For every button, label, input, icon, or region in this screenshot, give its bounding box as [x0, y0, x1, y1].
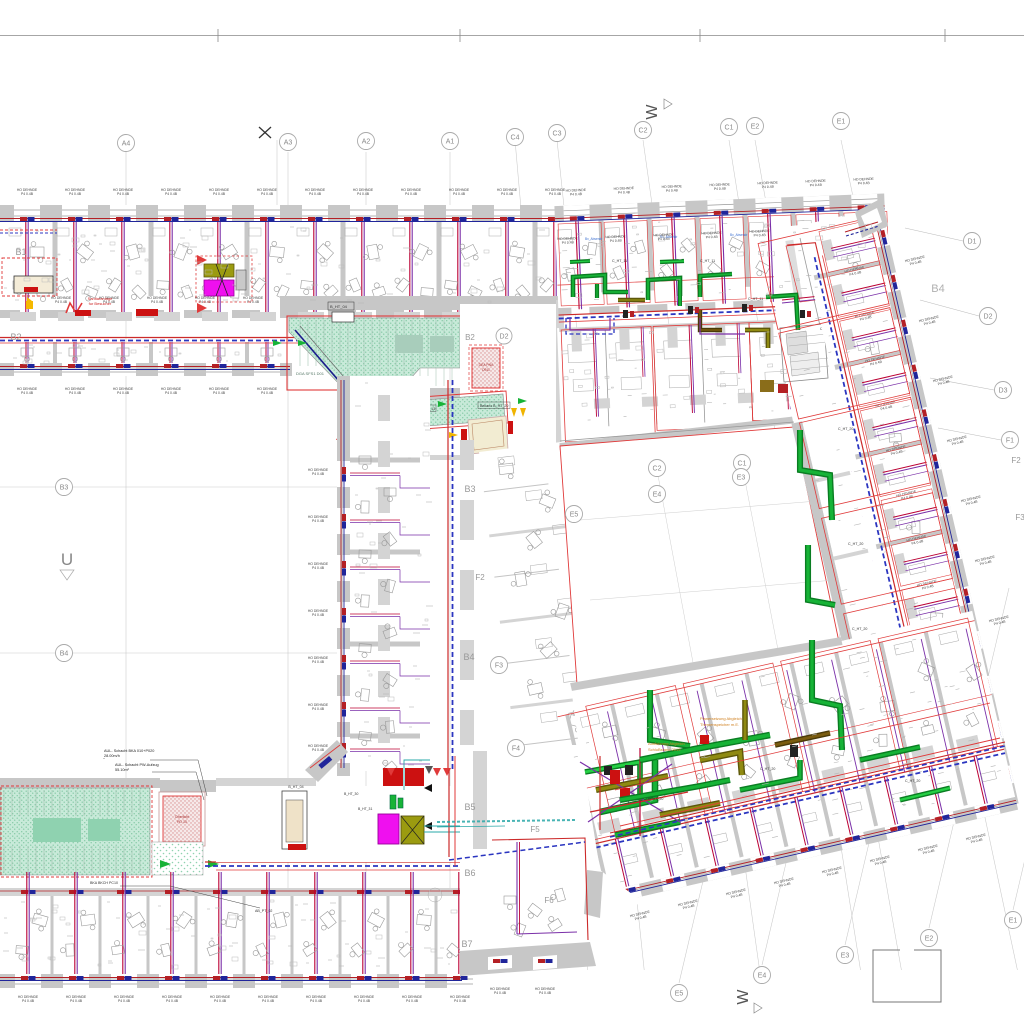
svg-text:B4: B4: [931, 283, 944, 295]
svg-text:A3: A3: [284, 140, 293, 147]
svg-text:DGA SFS1 D01: DGA SFS1 D01: [296, 371, 325, 376]
svg-text:C2: C2: [653, 466, 662, 473]
svg-text:C_HT_11: C_HT_11: [748, 297, 763, 301]
svg-text:P4 0.4B: P4 0.4B: [262, 999, 275, 1003]
svg-text:C_HT_20: C_HT_20: [905, 779, 920, 783]
svg-text:D2: D2: [984, 314, 993, 321]
svg-text:P4 0.4B: P4 0.4B: [118, 999, 131, 1003]
svg-text:C_HT_11: C_HT_11: [700, 259, 715, 263]
svg-text:W: W: [644, 104, 661, 120]
svg-text:Themenspeicher m.E.: Themenspeicher m.E.: [700, 722, 739, 727]
svg-text:P4 0.4B: P4 0.4B: [549, 192, 562, 196]
svg-text:P4 0.4B: P4 0.4B: [714, 187, 727, 191]
svg-text:F5: F5: [530, 825, 540, 834]
svg-text:C1: C1: [725, 125, 734, 132]
svg-text:C4: C4: [511, 135, 520, 142]
svg-text:W: W: [735, 989, 752, 1005]
svg-text:B5: B5: [464, 802, 475, 812]
svg-text:E3: E3: [737, 475, 746, 482]
svg-text:P4 0.4B: P4 0.4B: [261, 391, 274, 395]
svg-text:F6: F6: [544, 896, 554, 905]
svg-text:E2: E2: [751, 124, 760, 131]
svg-text:P4 0.4B: P4 0.4B: [762, 185, 775, 189]
svg-text:B3: B3: [464, 484, 475, 494]
svg-text:P4 0.4B: P4 0.4B: [55, 300, 68, 304]
svg-text:U: U: [61, 550, 73, 569]
svg-text:A1: A1: [446, 139, 455, 146]
svg-text:P4 0.4B: P4 0.4B: [213, 192, 226, 196]
svg-text:E4: E4: [653, 492, 662, 499]
svg-text:AB_PT_02: AB_PT_02: [255, 909, 272, 913]
svg-text:Bx_Absendr: Bx_Absendr: [585, 237, 603, 241]
svg-text:B6: B6: [464, 868, 475, 878]
svg-text:P4 0.4B: P4 0.4B: [406, 999, 419, 1003]
svg-text:P4 0.4B: P4 0.4B: [213, 391, 226, 395]
svg-text:P4 0.4B: P4 0.4B: [70, 999, 83, 1003]
svg-text:D911: D911: [482, 368, 490, 372]
svg-text:E5: E5: [570, 512, 579, 519]
svg-text:Planersetzung Abgleich: Planersetzung Abgleich: [700, 716, 742, 721]
svg-text:C_HT_20: C_HT_20: [848, 542, 863, 546]
svg-text:Bekano B_HT_20: Bekano B_HT_20: [480, 404, 508, 408]
svg-text:P4 0.4B: P4 0.4B: [21, 192, 34, 196]
svg-text:B_HT_31: B_HT_31: [358, 807, 372, 811]
svg-text:B4: B4: [463, 652, 474, 662]
svg-text:B_HT_04: B_HT_04: [288, 785, 303, 789]
svg-text:P4 0.4B: P4 0.4B: [312, 707, 325, 711]
svg-text:P4 0.4B: P4 0.4B: [69, 391, 82, 395]
svg-text:PD 10: PD 10: [177, 820, 187, 824]
svg-text:B2: B2: [10, 332, 21, 342]
svg-text:BKA BKCH PC10: BKA BKCH PC10: [90, 881, 118, 885]
svg-text:P4 0.4B: P4 0.4B: [539, 991, 552, 995]
svg-text:P4 0.4B: P4 0.4B: [312, 519, 325, 523]
svg-text:P4 0.4B: P4 0.4B: [494, 991, 507, 995]
svg-text:P4 0.4B: P4 0.4B: [166, 999, 179, 1003]
svg-text:P4 0.4B: P4 0.4B: [706, 235, 719, 239]
svg-text:B4: B4: [60, 651, 69, 658]
svg-text:P4 0.4B: P4 0.4B: [309, 192, 322, 196]
svg-text:P4 0.4B: P4 0.4B: [810, 183, 823, 187]
svg-text:C1: C1: [738, 461, 747, 468]
svg-text:P4 0.4B: P4 0.4B: [310, 999, 323, 1003]
svg-text:Ausfuhrung Abgleich: Ausfuhrung Abgleich: [648, 741, 685, 746]
svg-text:F3: F3: [1015, 513, 1024, 522]
svg-text:P4 0.4B: P4 0.4B: [501, 192, 514, 196]
svg-text:F2: F2: [475, 573, 485, 582]
svg-text:AUL- Schacht BKA 010+P020: AUL- Schacht BKA 010+P020: [104, 749, 154, 753]
svg-text:B3: B3: [60, 485, 69, 492]
svg-text:P4 0.4B: P4 0.4B: [405, 192, 418, 196]
svg-text:B7: B7: [461, 939, 472, 949]
svg-text:D2: D2: [500, 334, 509, 341]
svg-text:P4 0.4B: P4 0.4B: [312, 613, 325, 617]
svg-text:D1: D1: [968, 239, 977, 246]
svg-text:F1: F1: [1006, 438, 1014, 445]
svg-text:Oberlicht: Oberlicht: [175, 815, 189, 819]
svg-text:E1: E1: [837, 119, 846, 126]
svg-text:Bx_Absendr: Bx_Absendr: [730, 233, 748, 237]
svg-text:P4 0.4B: P4 0.4B: [117, 192, 130, 196]
svg-text:P4 0.4B: P4 0.4B: [312, 472, 325, 476]
svg-text:E5: E5: [675, 991, 684, 998]
svg-text:B2: B2: [465, 333, 475, 342]
svg-text:P4 0.4B: P4 0.4B: [453, 192, 466, 196]
svg-text:P4 0.4B: P4 0.4B: [261, 192, 274, 196]
svg-text:P4 0.4B: P4 0.4B: [21, 391, 34, 395]
svg-text:55.10m²: 55.10m²: [115, 768, 130, 772]
svg-text:E2: E2: [925, 936, 934, 943]
svg-text:fur Besucher: fur Besucher: [89, 301, 112, 306]
svg-text:P4 0.4B: P4 0.4B: [117, 391, 130, 395]
svg-text:F2: F2: [1011, 456, 1021, 465]
svg-text:E3: E3: [841, 953, 850, 960]
svg-text:B_HT_30: B_HT_30: [344, 792, 358, 796]
svg-text:P4 0.4B: P4 0.4B: [357, 192, 370, 196]
svg-text:P4 0.4B: P4 0.4B: [454, 999, 467, 1003]
svg-text:C_HT_20: C_HT_20: [838, 427, 853, 431]
svg-text:B1: B1: [15, 247, 26, 257]
svg-text:F3: F3: [495, 663, 503, 670]
svg-text:P4 0.4B: P4 0.4B: [214, 999, 227, 1003]
svg-text:DEA PNA: DEA PNA: [479, 363, 494, 367]
svg-text:P4 0.4B: P4 0.4B: [312, 748, 325, 752]
svg-text:P4 0.4B: P4 0.4B: [165, 192, 178, 196]
svg-text:P4 0.4B: P4 0.4B: [312, 660, 325, 664]
svg-text:C3: C3: [553, 131, 562, 138]
svg-text:A4: A4: [122, 141, 131, 148]
svg-text:P4 0.4B: P4 0.4B: [165, 391, 178, 395]
svg-text:B_HT_04: B_HT_04: [330, 304, 348, 309]
svg-text:P4 0.4B: P4 0.4B: [618, 190, 631, 194]
svg-text:P4 0.4B: P4 0.4B: [666, 188, 679, 192]
svg-text:P4 0.4B: P4 0.4B: [22, 999, 35, 1003]
svg-text:AUL- Schacht PW-Aufzug: AUL- Schacht PW-Aufzug: [115, 763, 159, 767]
svg-text:P4 0.4B: P4 0.4B: [69, 192, 82, 196]
svg-text:28.00m/h: 28.00m/h: [104, 754, 120, 758]
svg-text:F4: F4: [512, 746, 520, 753]
svg-text:E4: E4: [758, 973, 767, 980]
svg-text:P4 0.4B: P4 0.4B: [358, 999, 371, 1003]
svg-text:P4 0.4B: P4 0.4B: [610, 239, 623, 243]
svg-text:P4 0.4B: P4 0.4B: [151, 300, 164, 304]
svg-text:P4 0.4B: P4 0.4B: [858, 181, 871, 185]
svg-text:A2: A2: [362, 139, 371, 146]
svg-text:C_HT_11: C_HT_11: [612, 259, 627, 263]
svg-text:P4 0.4B: P4 0.4B: [570, 192, 583, 196]
svg-text:P4 0.4B: P4 0.4B: [312, 566, 325, 570]
svg-text:C_HT_20: C_HT_20: [852, 627, 867, 631]
svg-text:D3: D3: [999, 388, 1008, 395]
svg-text:E1: E1: [1009, 918, 1018, 925]
svg-text:SchluBstand 2019: SchluBstand 2019: [648, 747, 681, 752]
svg-text:P4 0.4B: P4 0.4B: [754, 233, 767, 237]
svg-text:C2: C2: [639, 128, 648, 135]
svg-text:C_HT_20: C_HT_20: [760, 767, 775, 771]
svg-text:C_HT_20: C_HT_20: [648, 797, 663, 801]
